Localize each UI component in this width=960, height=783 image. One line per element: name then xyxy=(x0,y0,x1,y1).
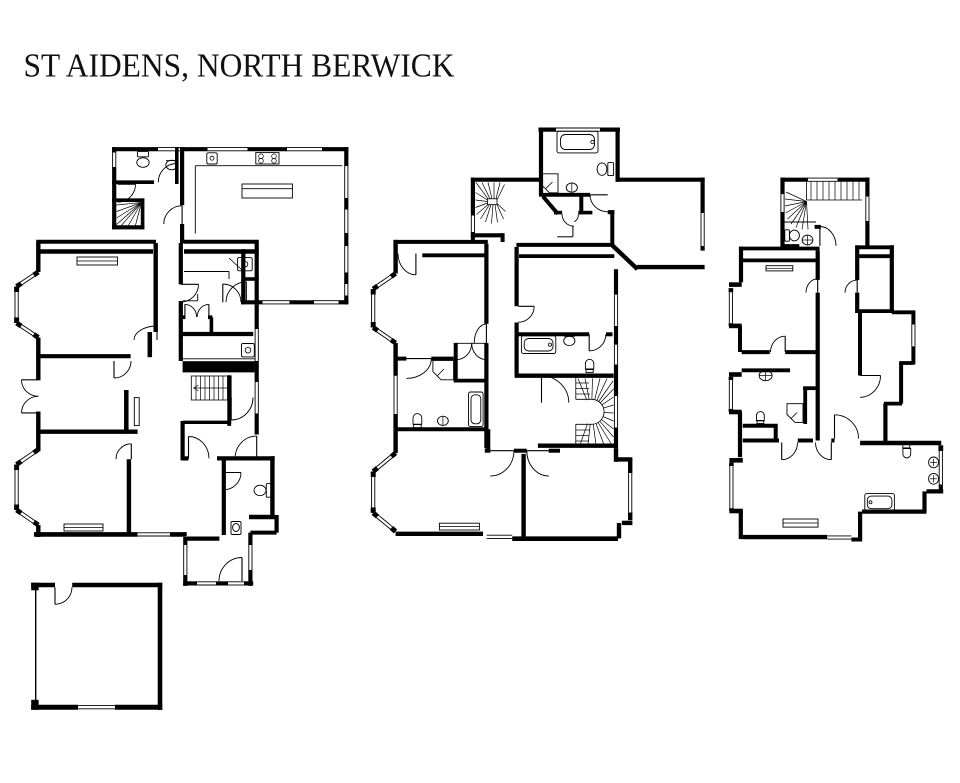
svg-text:ST AIDENS, NORTH BERWICK: ST AIDENS, NORTH BERWICK xyxy=(24,48,455,85)
